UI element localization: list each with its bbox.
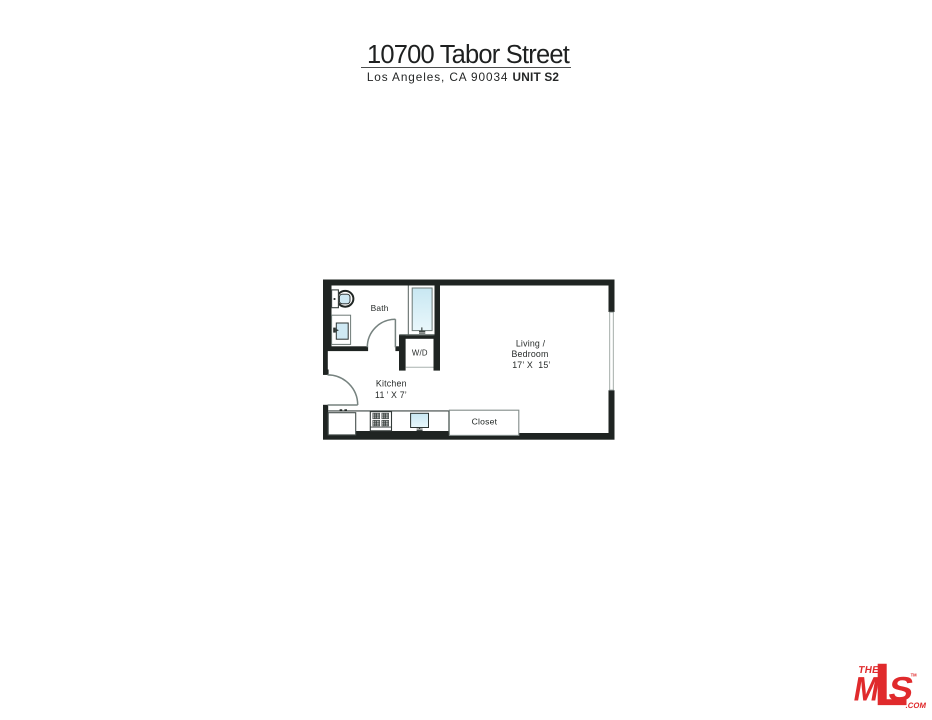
svg-text:17’ X 15’: 17’ X 15’ <box>512 360 550 370</box>
svg-text:Closet: Closet <box>472 417 498 427</box>
svg-text:11 ’ X 7’: 11 ’ X 7’ <box>375 390 407 400</box>
svg-text:TM: TM <box>911 673 918 678</box>
svg-text:Kitchen: Kitchen <box>376 379 407 389</box>
svg-text:W/D: W/D <box>412 348 428 357</box>
svg-text:.COM: .COM <box>905 701 927 710</box>
svg-text:Living /: Living / <box>516 338 546 348</box>
svg-text:Bath: Bath <box>371 303 389 313</box>
svg-text:Bedroom: Bedroom <box>511 349 548 359</box>
